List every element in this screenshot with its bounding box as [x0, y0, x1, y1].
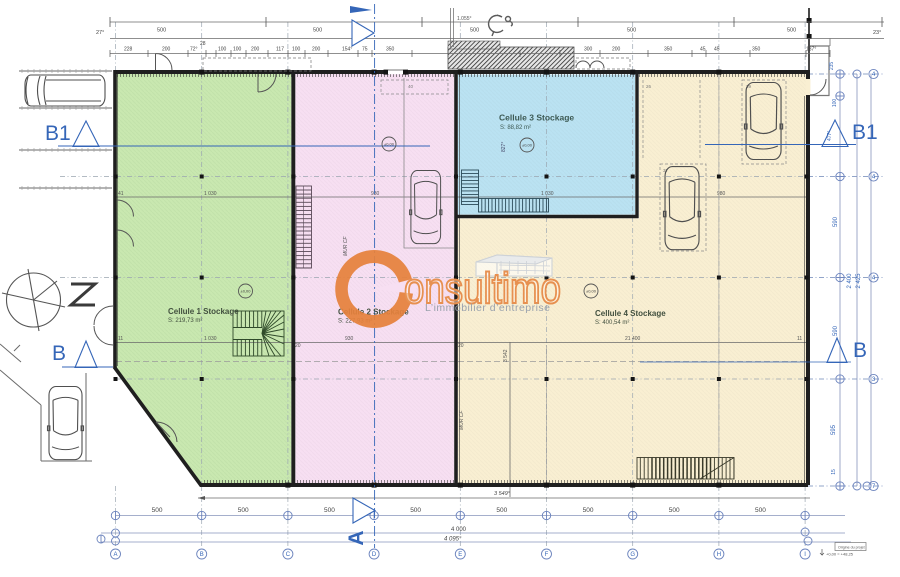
svg-text:28: 28	[200, 41, 206, 47]
svg-text:S: 219,73 m²: S: 219,73 m²	[168, 318, 202, 324]
svg-text:F: F	[545, 552, 549, 558]
svg-text:72°: 72°	[190, 47, 198, 53]
svg-text:MUR CF: MUR CF	[343, 236, 349, 256]
svg-text:B1: B1	[45, 122, 71, 145]
svg-text:590: 590	[833, 216, 839, 227]
svg-text:S: 88,82 m²: S: 88,82 m²	[500, 125, 531, 131]
svg-text:Origine du projet: Origine du projet	[838, 546, 865, 550]
svg-text:228: 228	[124, 47, 133, 53]
svg-text:3 542: 3 542	[503, 349, 509, 362]
svg-text:2 425: 2 425	[856, 273, 862, 289]
svg-text:D: D	[372, 552, 377, 558]
svg-text:21 400: 21 400	[625, 336, 641, 342]
svg-text:980: 980	[717, 191, 726, 197]
svg-text:±0,00: ±0,00	[241, 288, 252, 293]
svg-text:15: 15	[831, 469, 837, 475]
svg-text:930: 930	[345, 336, 354, 342]
svg-text:E: E	[458, 552, 462, 558]
svg-text:A: A	[113, 552, 117, 558]
svg-text:100: 100	[292, 47, 301, 53]
svg-text:1 030: 1 030	[541, 191, 554, 197]
svg-text:B: B	[853, 339, 867, 362]
svg-text:100: 100	[233, 47, 242, 53]
svg-text:500: 500	[152, 507, 163, 514]
svg-text:500: 500	[324, 507, 335, 514]
svg-text:200: 200	[162, 47, 171, 53]
svg-text:MUR CF: MUR CF	[459, 410, 465, 430]
svg-text:40: 40	[408, 84, 414, 89]
svg-text:100: 100	[832, 99, 838, 108]
svg-text:827°: 827°	[501, 142, 507, 152]
svg-text:B: B	[52, 342, 66, 365]
svg-text:930: 930	[371, 191, 380, 197]
svg-text:500: 500	[470, 28, 479, 34]
svg-text:500: 500	[496, 507, 507, 514]
svg-text:27°: 27°	[96, 30, 104, 36]
svg-text:590: 590	[833, 325, 839, 336]
svg-text:500: 500	[755, 507, 766, 514]
svg-text:20: 20	[295, 343, 301, 349]
svg-text:B1: B1	[852, 121, 878, 144]
svg-text:L’immobilier d’entreprise: L’immobilier d’entreprise	[425, 302, 550, 314]
svg-text:A: A	[345, 530, 368, 545]
svg-text:±0,00: ±0,00	[522, 142, 533, 147]
svg-text:500: 500	[787, 28, 796, 34]
svg-text:595: 595	[831, 424, 837, 435]
svg-text:300: 300	[584, 47, 593, 53]
svg-text:137°: 137°	[806, 47, 816, 53]
svg-text:Cellule 3 Stockage: Cellule 3 Stockage	[499, 113, 574, 123]
svg-text:45: 45	[714, 47, 720, 53]
svg-text:500: 500	[157, 28, 166, 34]
svg-text:+0,00 = +48,25: +0,00 = +48,25	[826, 552, 854, 557]
svg-text:H: H	[717, 552, 721, 558]
svg-text:154°: 154°	[342, 47, 352, 53]
svg-text:4 000: 4 000	[451, 527, 467, 533]
svg-text:1 030: 1 030	[204, 191, 217, 197]
svg-text:11: 11	[797, 336, 802, 342]
svg-text:477°: 477°	[827, 131, 833, 141]
svg-text:4 095°: 4 095°	[444, 537, 462, 543]
svg-text:Cellule 1 Stockage: Cellule 1 Stockage	[168, 307, 239, 316]
svg-text:23°: 23°	[873, 30, 881, 36]
svg-text:3 549°: 3 549°	[494, 491, 511, 497]
svg-text:B: B	[200, 552, 204, 558]
svg-text:200: 200	[612, 47, 621, 53]
svg-text:±0,00: ±0,00	[384, 141, 395, 146]
svg-text:Cellule 4 Stockage: Cellule 4 Stockage	[595, 309, 666, 318]
svg-text:75: 75	[362, 47, 368, 53]
svg-text:350: 350	[752, 47, 761, 53]
svg-text:200: 200	[251, 47, 260, 53]
svg-text:1.055°: 1.055°	[457, 16, 472, 22]
svg-text:500: 500	[583, 507, 594, 514]
svg-text:1 030: 1 030	[204, 336, 217, 342]
svg-text:26: 26	[646, 84, 652, 89]
svg-text:G: G	[630, 552, 635, 558]
svg-text:S: 400,54 m²: S: 400,54 m²	[595, 320, 629, 326]
svg-text:235: 235	[829, 62, 835, 71]
svg-text:2 400: 2 400	[847, 273, 853, 289]
svg-text:117: 117	[276, 47, 284, 53]
svg-text:350: 350	[664, 47, 673, 53]
svg-text:500: 500	[238, 507, 249, 514]
svg-text:500: 500	[669, 507, 680, 514]
svg-text:±0,00: ±0,00	[586, 288, 597, 293]
svg-text:500: 500	[313, 28, 322, 34]
svg-text:100: 100	[218, 47, 227, 53]
svg-text:C: C	[286, 552, 291, 558]
svg-text:200: 200	[312, 47, 321, 53]
svg-text:350: 350	[386, 47, 395, 53]
svg-text:45: 45	[700, 47, 706, 53]
svg-text:500: 500	[410, 507, 421, 514]
svg-text:500: 500	[627, 28, 636, 34]
